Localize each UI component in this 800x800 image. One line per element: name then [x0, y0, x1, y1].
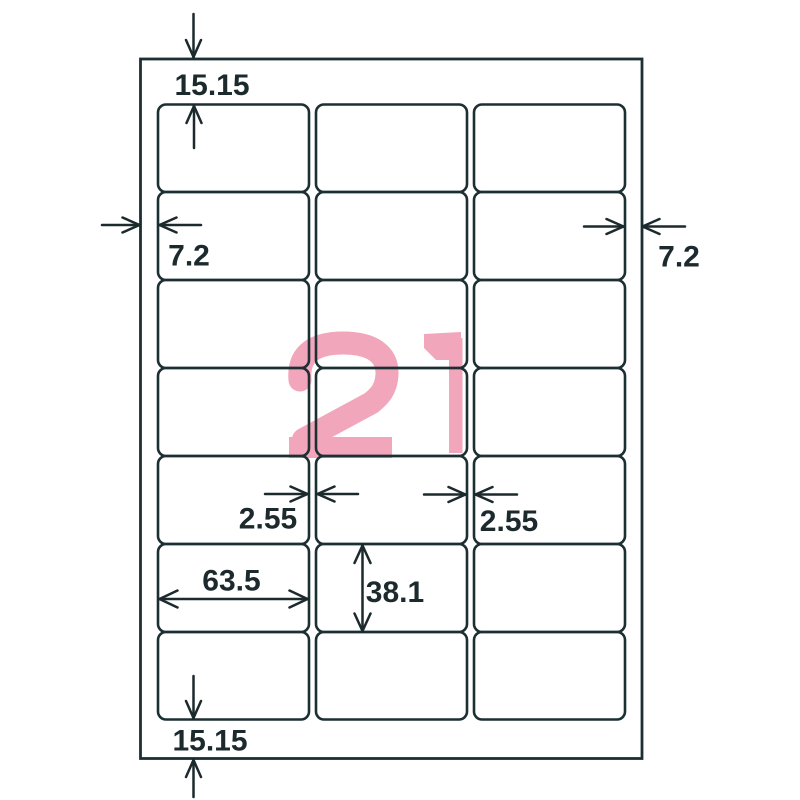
svg-text:7.2: 7.2 [168, 240, 210, 273]
svg-text:2.55: 2.55 [480, 505, 538, 538]
svg-text:7.2: 7.2 [658, 241, 700, 274]
svg-text:63.5: 63.5 [202, 565, 260, 598]
svg-text:15.15: 15.15 [172, 725, 247, 758]
svg-text:2.55: 2.55 [239, 503, 297, 536]
svg-text:15.15: 15.15 [174, 69, 249, 102]
svg-text:38.1: 38.1 [366, 576, 424, 609]
